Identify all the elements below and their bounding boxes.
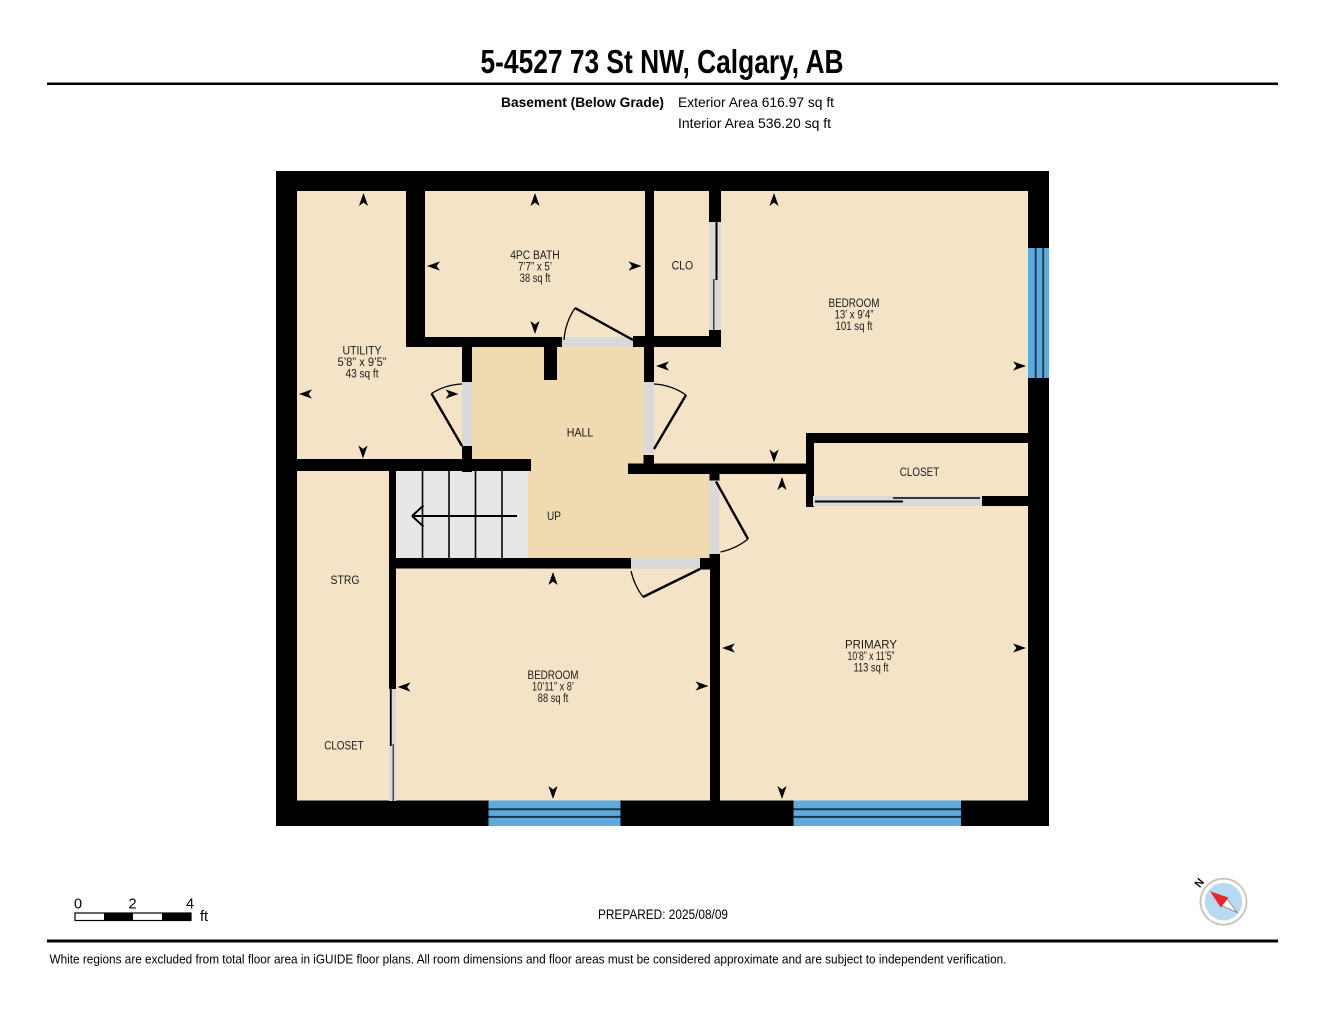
svg-text:Exterior Area 616.97 sq ft: Exterior Area 616.97 sq ft — [678, 94, 834, 110]
svg-text:STRG: STRG — [331, 575, 360, 587]
svg-text:43 sq ft: 43 sq ft — [346, 369, 380, 381]
svg-text:PRIMARY: PRIMARY — [845, 640, 897, 652]
svg-text:113 sq ft: 113 sq ft — [854, 663, 890, 675]
svg-text:White regions are excluded fro: White regions are excluded from total fl… — [50, 953, 1007, 967]
svg-text:13’ x 9’4”: 13’ x 9’4” — [835, 310, 874, 322]
svg-text:0: 0 — [74, 897, 82, 913]
svg-text:5-4527 73 St NW, Calgary, AB: 5-4527 73 St NW, Calgary, AB — [481, 43, 844, 80]
svg-text:5’8” x 9’5”: 5’8” x 9’5” — [338, 357, 387, 369]
svg-text:2: 2 — [128, 897, 136, 913]
svg-text:PREPARED: 2025/08/09: PREPARED: 2025/08/09 — [598, 906, 728, 922]
svg-text:4: 4 — [186, 897, 194, 913]
svg-text:ft: ft — [200, 909, 208, 925]
svg-text:BEDROOM: BEDROOM — [528, 670, 579, 682]
svg-text:Basement (Below Grade): Basement (Below Grade) — [501, 94, 664, 110]
svg-text:UTILITY: UTILITY — [343, 346, 382, 358]
svg-text:38 sq ft: 38 sq ft — [520, 273, 551, 285]
svg-text:10’11” x 8’: 10’11” x 8’ — [532, 682, 574, 694]
svg-text:UP: UP — [547, 511, 561, 523]
svg-text:88 sq ft: 88 sq ft — [538, 693, 569, 705]
svg-text:10’8” x 11’5”: 10’8” x 11’5” — [848, 651, 895, 663]
svg-text:BEDROOM: BEDROOM — [829, 298, 880, 310]
svg-text:Interior Area 536.20 sq ft: Interior Area 536.20 sq ft — [678, 115, 831, 131]
svg-text:HALL: HALL — [567, 428, 594, 440]
svg-text:7’7” x 5’: 7’7” x 5’ — [518, 262, 552, 274]
svg-text:4PC BATH: 4PC BATH — [510, 250, 560, 262]
svg-text:CLOSET: CLOSET — [900, 467, 940, 479]
svg-text:CLOSET: CLOSET — [324, 741, 364, 753]
svg-text:101 sq ft: 101 sq ft — [836, 321, 874, 333]
svg-text:CLO: CLO — [672, 261, 694, 273]
